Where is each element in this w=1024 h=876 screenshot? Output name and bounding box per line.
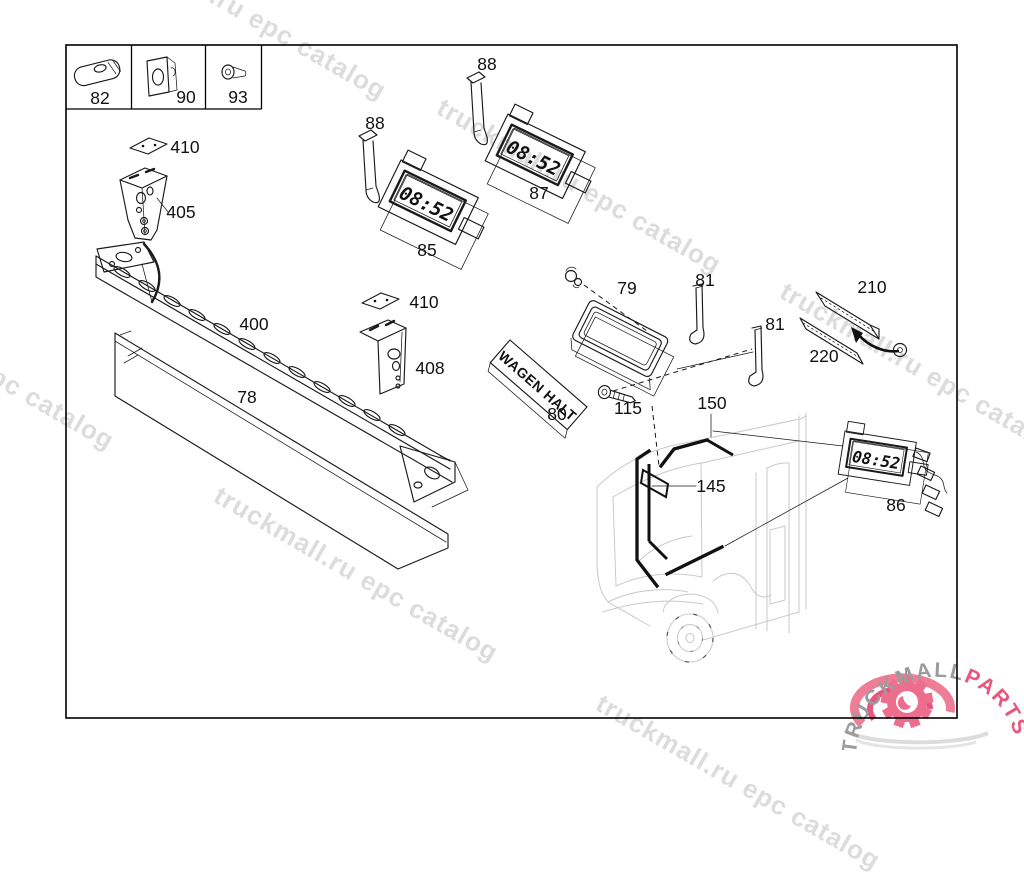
part-label-82: 82 xyxy=(90,88,109,108)
part-81-bracket-1 xyxy=(690,284,704,344)
clamp-nut-icon xyxy=(73,58,122,88)
part-label-408: 408 xyxy=(415,358,444,378)
part-label-80: 80 xyxy=(547,404,567,424)
part-86-display xyxy=(836,421,933,504)
part-label-88: 88 xyxy=(477,54,496,74)
part-label-210: 210 xyxy=(857,277,886,297)
leader-79-dashed xyxy=(584,285,647,331)
part-405-bracket xyxy=(120,168,167,240)
part-label-115: 115 xyxy=(614,398,642,418)
legend-cell-82 xyxy=(73,58,122,88)
leaders-86-to-bus xyxy=(713,431,848,546)
part-210-strip xyxy=(816,292,879,339)
rail-right-end-bracket xyxy=(400,446,468,507)
part-86-connectors xyxy=(913,448,947,516)
part-number-labels: 82 90 93 410 405 400 78 88 88 85 87 79 8… xyxy=(90,54,905,515)
part-label-145: 145 xyxy=(696,476,725,496)
bus-front-wheel xyxy=(667,614,713,662)
part-label-81: 81 xyxy=(765,314,784,334)
part-label-93: 93 xyxy=(228,87,247,107)
legend-cell-90 xyxy=(147,57,177,96)
part-88-lever-1 xyxy=(359,130,379,203)
sign-text: WAGEN HALT xyxy=(495,348,580,424)
part-label-400: 400 xyxy=(239,314,268,334)
part-label-220: 220 xyxy=(809,346,838,366)
part-label-81: 81 xyxy=(695,270,714,290)
leader-81-to-frame xyxy=(677,352,753,369)
part-78-panel xyxy=(115,331,448,569)
part-label-86: 86 xyxy=(886,495,905,515)
part-80-sign: WAGEN HALT xyxy=(485,340,590,438)
bracket-plate-icon xyxy=(147,57,177,96)
part-87-display xyxy=(476,103,606,224)
part-label-405: 405 xyxy=(166,202,195,222)
part-label-410: 410 xyxy=(409,292,438,312)
bus-outline xyxy=(597,413,806,662)
part-145-bracket xyxy=(637,451,722,586)
part-label-85: 85 xyxy=(417,240,436,260)
mounting-strip xyxy=(641,470,668,497)
part-label-150: 150 xyxy=(697,393,726,413)
part-label-90: 90 xyxy=(176,87,196,107)
logo-swoosh-gray xyxy=(845,730,988,742)
part-label-78: 78 xyxy=(237,387,256,407)
part-408-bracket xyxy=(360,320,406,394)
exploded-parts-diagram: 08:52 xyxy=(0,0,1024,750)
part-label-87: 87 xyxy=(529,183,548,203)
logo-suffix-text: PARTS xyxy=(961,665,1024,740)
truckmall-logo: TRUCKMALLPARTS xyxy=(838,659,1024,750)
part-88-lever-2 xyxy=(467,72,487,145)
legend-cell-93 xyxy=(222,65,246,79)
part-label-88: 88 xyxy=(365,113,384,133)
part-label-79: 79 xyxy=(617,278,636,298)
screw-sleeve-icon xyxy=(222,65,246,79)
part-410-plate-1 xyxy=(130,138,167,154)
part-79-connector xyxy=(566,267,582,288)
part-400-rail xyxy=(96,242,468,507)
part-label-410: 410 xyxy=(170,137,199,157)
part-410-plate-2 xyxy=(362,293,399,309)
leader-115-to-strip xyxy=(652,406,659,466)
part-81-bracket-2 xyxy=(749,326,763,386)
